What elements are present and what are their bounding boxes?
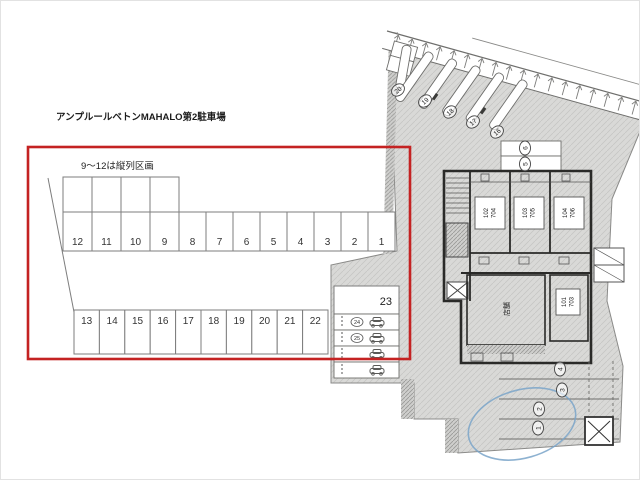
spot-number-4: 4 xyxy=(555,362,566,376)
room-label-box xyxy=(556,289,580,315)
room-number: 704 xyxy=(492,207,498,218)
svg-text:6: 6 xyxy=(522,146,529,150)
space-1-label: 1 xyxy=(379,237,385,248)
south-wall-b xyxy=(445,419,458,453)
space-7-label: 7 xyxy=(217,237,223,248)
space-23-label: 23 xyxy=(380,296,392,308)
space-21-label: 21 xyxy=(284,316,296,327)
parking-diagram: アンプルールベトンMAHALO第2駐車場 9〜12は縦列区画 121110987… xyxy=(48,111,399,378)
room-label-box xyxy=(475,197,505,229)
space-13-label: 13 xyxy=(81,316,93,327)
utility-boxes xyxy=(594,248,624,282)
svg-text:5: 5 xyxy=(522,162,529,166)
space-2-label: 2 xyxy=(352,237,358,248)
space-18-label: 18 xyxy=(208,316,220,327)
tandem-cell xyxy=(63,177,92,212)
space-5-label: 5 xyxy=(271,237,277,248)
space-14-label: 14 xyxy=(107,316,119,327)
shaft xyxy=(446,223,468,257)
room-number: 104 xyxy=(563,207,569,218)
spot-number-2: 2 xyxy=(534,402,545,416)
bottom-row-spaces: 13141516171819202122 xyxy=(74,310,328,354)
spot-number-3: 3 xyxy=(557,383,568,397)
small-stall xyxy=(334,330,399,346)
space-15-label: 15 xyxy=(132,316,144,327)
svg-text:3: 3 xyxy=(559,388,566,392)
room-number: 103 xyxy=(523,207,529,218)
shop-label: 店舗 xyxy=(502,302,511,316)
small-stalls: 2425 xyxy=(334,314,399,378)
spot-24-label: 24 xyxy=(354,320,360,326)
spot-25-label: 25 xyxy=(354,336,360,342)
room-number: 102 xyxy=(484,207,490,218)
small-stall xyxy=(334,314,399,330)
room-number: 705 xyxy=(531,207,537,218)
svg-text:2: 2 xyxy=(536,407,543,411)
space-19-label: 19 xyxy=(234,316,246,327)
upper-stalls xyxy=(501,141,561,171)
tandem-cell xyxy=(121,177,150,212)
map-svg: 102704103705104706101703 店舗 xyxy=(1,1,640,480)
space-8-label: 8 xyxy=(190,237,196,248)
room-number: 706 xyxy=(571,207,577,218)
space-11-label: 11 xyxy=(101,237,112,248)
space-6-label: 6 xyxy=(244,237,250,248)
tandem-cell xyxy=(92,177,121,212)
elevator-icon xyxy=(447,282,468,299)
space-3-label: 3 xyxy=(325,237,331,248)
small-stall xyxy=(334,362,399,378)
svg-text:1: 1 xyxy=(535,426,542,430)
spot-number-6: 6 xyxy=(520,141,531,155)
space-22-label: 22 xyxy=(310,316,322,327)
scanned-parking-map: 102704103705104706101703 店舗 xyxy=(0,0,640,480)
space-20-label: 20 xyxy=(259,316,271,327)
room-number: 703 xyxy=(570,296,576,307)
spot-number-1: 1 xyxy=(533,421,544,435)
room-number: 101 xyxy=(562,296,568,307)
space-23: 23 xyxy=(334,286,399,314)
space-12-label: 12 xyxy=(72,237,84,248)
room-label-box xyxy=(554,197,584,229)
space-9-label: 9 xyxy=(162,237,168,248)
tandem-note: 9〜12は縦列区画 xyxy=(81,160,154,172)
tandem-cell xyxy=(150,177,179,212)
space-4-label: 4 xyxy=(298,237,304,248)
space-10-label: 10 xyxy=(130,237,142,248)
svg-text:4: 4 xyxy=(557,367,564,371)
space-17-label: 17 xyxy=(183,316,195,327)
space-16-label: 16 xyxy=(157,316,169,327)
room-label-box xyxy=(514,197,544,229)
top-row-spaces: 121110987654321 xyxy=(63,177,395,251)
south-wall-a xyxy=(401,379,414,419)
spot-number-5: 5 xyxy=(520,157,531,171)
map-title: アンプルールベトンMAHALO第2駐車場 xyxy=(56,111,226,123)
corner-marker-box xyxy=(585,417,613,445)
